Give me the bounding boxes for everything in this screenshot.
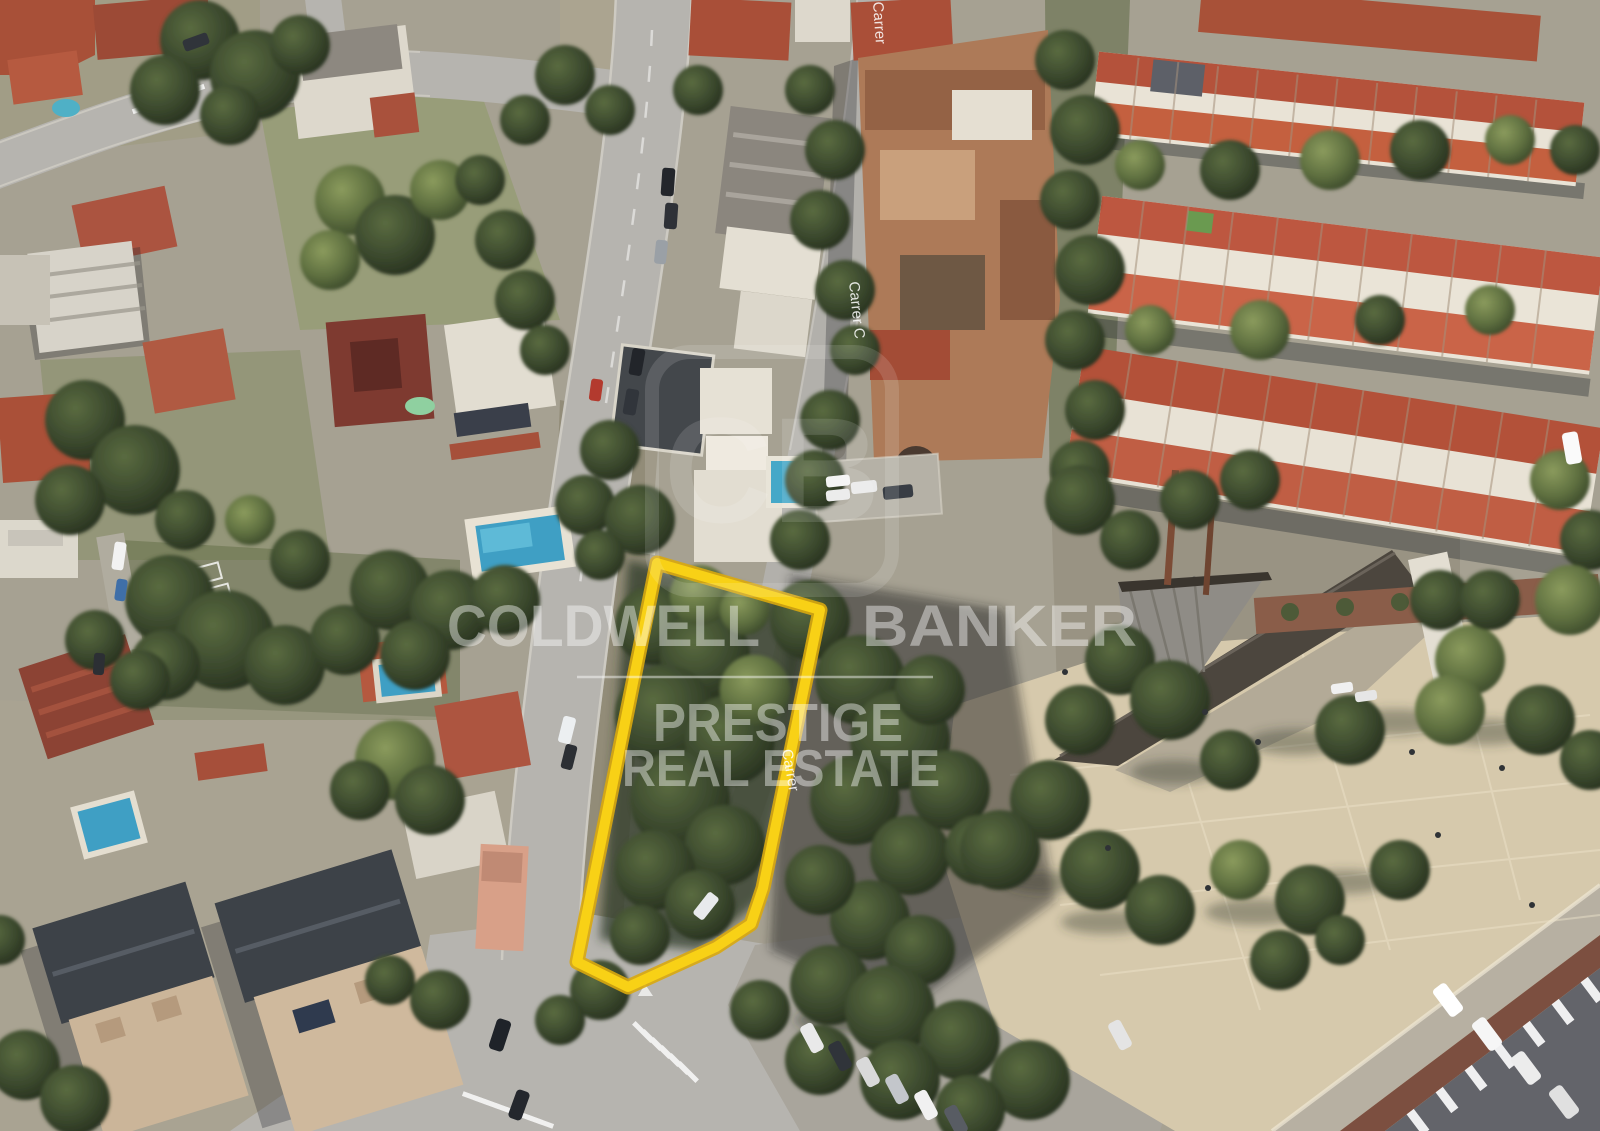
aerial-photo: Carrer Carrer C Carrer CB COLDWELL BANKE… — [0, 0, 1600, 1131]
pool-green — [405, 397, 435, 415]
watermark-cb-monogram: CB — [664, 386, 881, 554]
watermark-word-banker: BANKER — [862, 594, 1137, 659]
watermark-word-coldwell: COLDWELL — [447, 594, 760, 659]
satellite-map: Carrer Carrer C Carrer CB COLDWELL BANKE… — [0, 0, 1600, 1131]
street-label-carrer-top: Carrer — [869, 1, 889, 45]
watermark-words-real-estate: REAL ESTATE — [622, 740, 940, 798]
pool — [52, 99, 80, 117]
